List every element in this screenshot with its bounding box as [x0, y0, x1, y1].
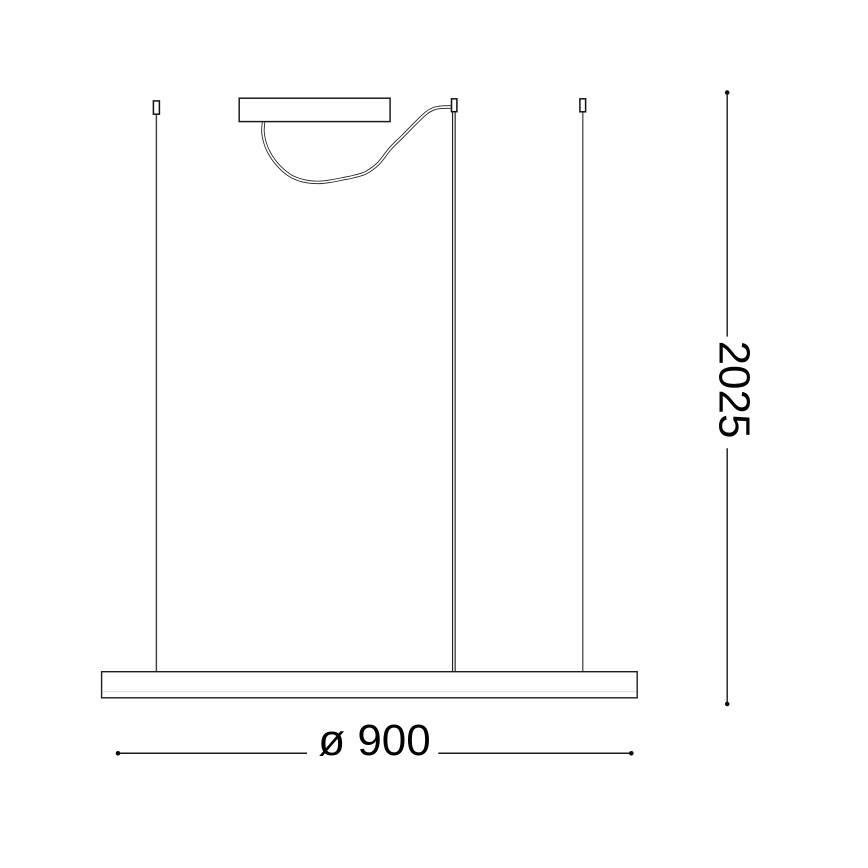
svg-text:ø 900: ø 900 [318, 716, 431, 765]
svg-text:2025: 2025 [709, 341, 758, 439]
